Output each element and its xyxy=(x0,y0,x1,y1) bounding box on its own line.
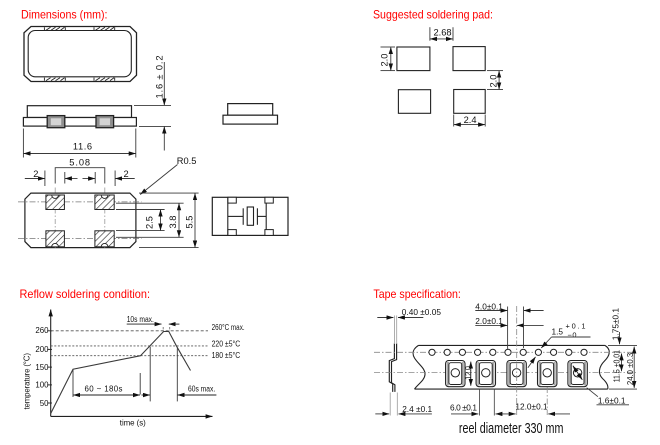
svg-text:Reflow soldering condition:: Reflow soldering condition: xyxy=(20,287,151,301)
svg-text:12.0±0.1: 12.0±0.1 xyxy=(515,402,548,412)
svg-text:2.4: 2.4 xyxy=(464,115,477,125)
svg-text:200: 200 xyxy=(35,345,49,354)
svg-text:11.5 ±0.01: 11.5 ±0.01 xyxy=(611,350,621,383)
svg-text:1.75±0.1: 1.75±0.1 xyxy=(611,308,621,341)
svg-text:60s max.: 60s max. xyxy=(188,385,215,394)
svg-text:6.0 ±0.1: 6.0 ±0.1 xyxy=(450,402,477,412)
svg-text:time (s): time (s) xyxy=(120,419,146,428)
svg-text:reel diameter 330 mm: reel diameter 330 mm xyxy=(459,421,564,437)
svg-text:2: 2 xyxy=(33,169,38,179)
svg-text:60 ~ 180s: 60 ~ 180s xyxy=(85,385,123,394)
svg-text:2.4 ±0.1: 2.4 ±0.1 xyxy=(402,404,432,414)
svg-text:2.68: 2.68 xyxy=(434,28,452,38)
svg-text:temperature (°C): temperature (°C) xyxy=(23,353,32,410)
svg-text:12.0: 12.0 xyxy=(464,366,473,380)
svg-text:3.8: 3.8 xyxy=(168,216,178,229)
svg-text:+0.1: +0.1 xyxy=(566,322,586,331)
svg-text:5.5: 5.5 xyxy=(185,216,195,229)
svg-text:100: 100 xyxy=(35,381,49,390)
svg-text:Tape specification:: Tape specification: xyxy=(373,287,461,301)
svg-text:2: 2 xyxy=(124,169,129,179)
svg-text:R0.5: R0.5 xyxy=(177,156,197,166)
svg-text:1.6±0.1: 1.6±0.1 xyxy=(598,395,626,405)
svg-text:11.6: 11.6 xyxy=(73,142,92,152)
svg-text:4.0±0.1: 4.0±0.1 xyxy=(475,301,503,311)
svg-text:−0: −0 xyxy=(568,331,577,340)
svg-text:180 ±5°C: 180 ±5°C xyxy=(212,351,241,360)
svg-text:260°C max.: 260°C max. xyxy=(212,323,245,332)
svg-text:Dimensions (mm):: Dimensions (mm): xyxy=(21,8,108,22)
svg-text:2.0: 2.0 xyxy=(488,75,498,88)
svg-text:50: 50 xyxy=(40,399,49,408)
svg-text:0.40 ±0.05: 0.40 ±0.05 xyxy=(402,307,442,317)
svg-text:Suggested soldering pad:: Suggested soldering pad: xyxy=(373,7,493,21)
svg-text:220 ±5°C: 220 ±5°C xyxy=(212,340,241,349)
svg-text:2.0: 2.0 xyxy=(379,54,389,67)
svg-text:10s max.: 10s max. xyxy=(127,315,154,324)
svg-text:5.08: 5.08 xyxy=(69,157,90,167)
svg-text:260: 260 xyxy=(35,326,49,335)
svg-text:150: 150 xyxy=(35,363,49,372)
svg-text:1.6 ± 0.2: 1.6 ± 0.2 xyxy=(155,56,165,99)
svg-text:1.5: 1.5 xyxy=(552,327,564,337)
svg-text:24.0 ±0.3: 24.0 ±0.3 xyxy=(625,352,635,385)
svg-text:2.5: 2.5 xyxy=(144,216,154,229)
svg-text:2.0±0.1: 2.0±0.1 xyxy=(475,316,503,326)
